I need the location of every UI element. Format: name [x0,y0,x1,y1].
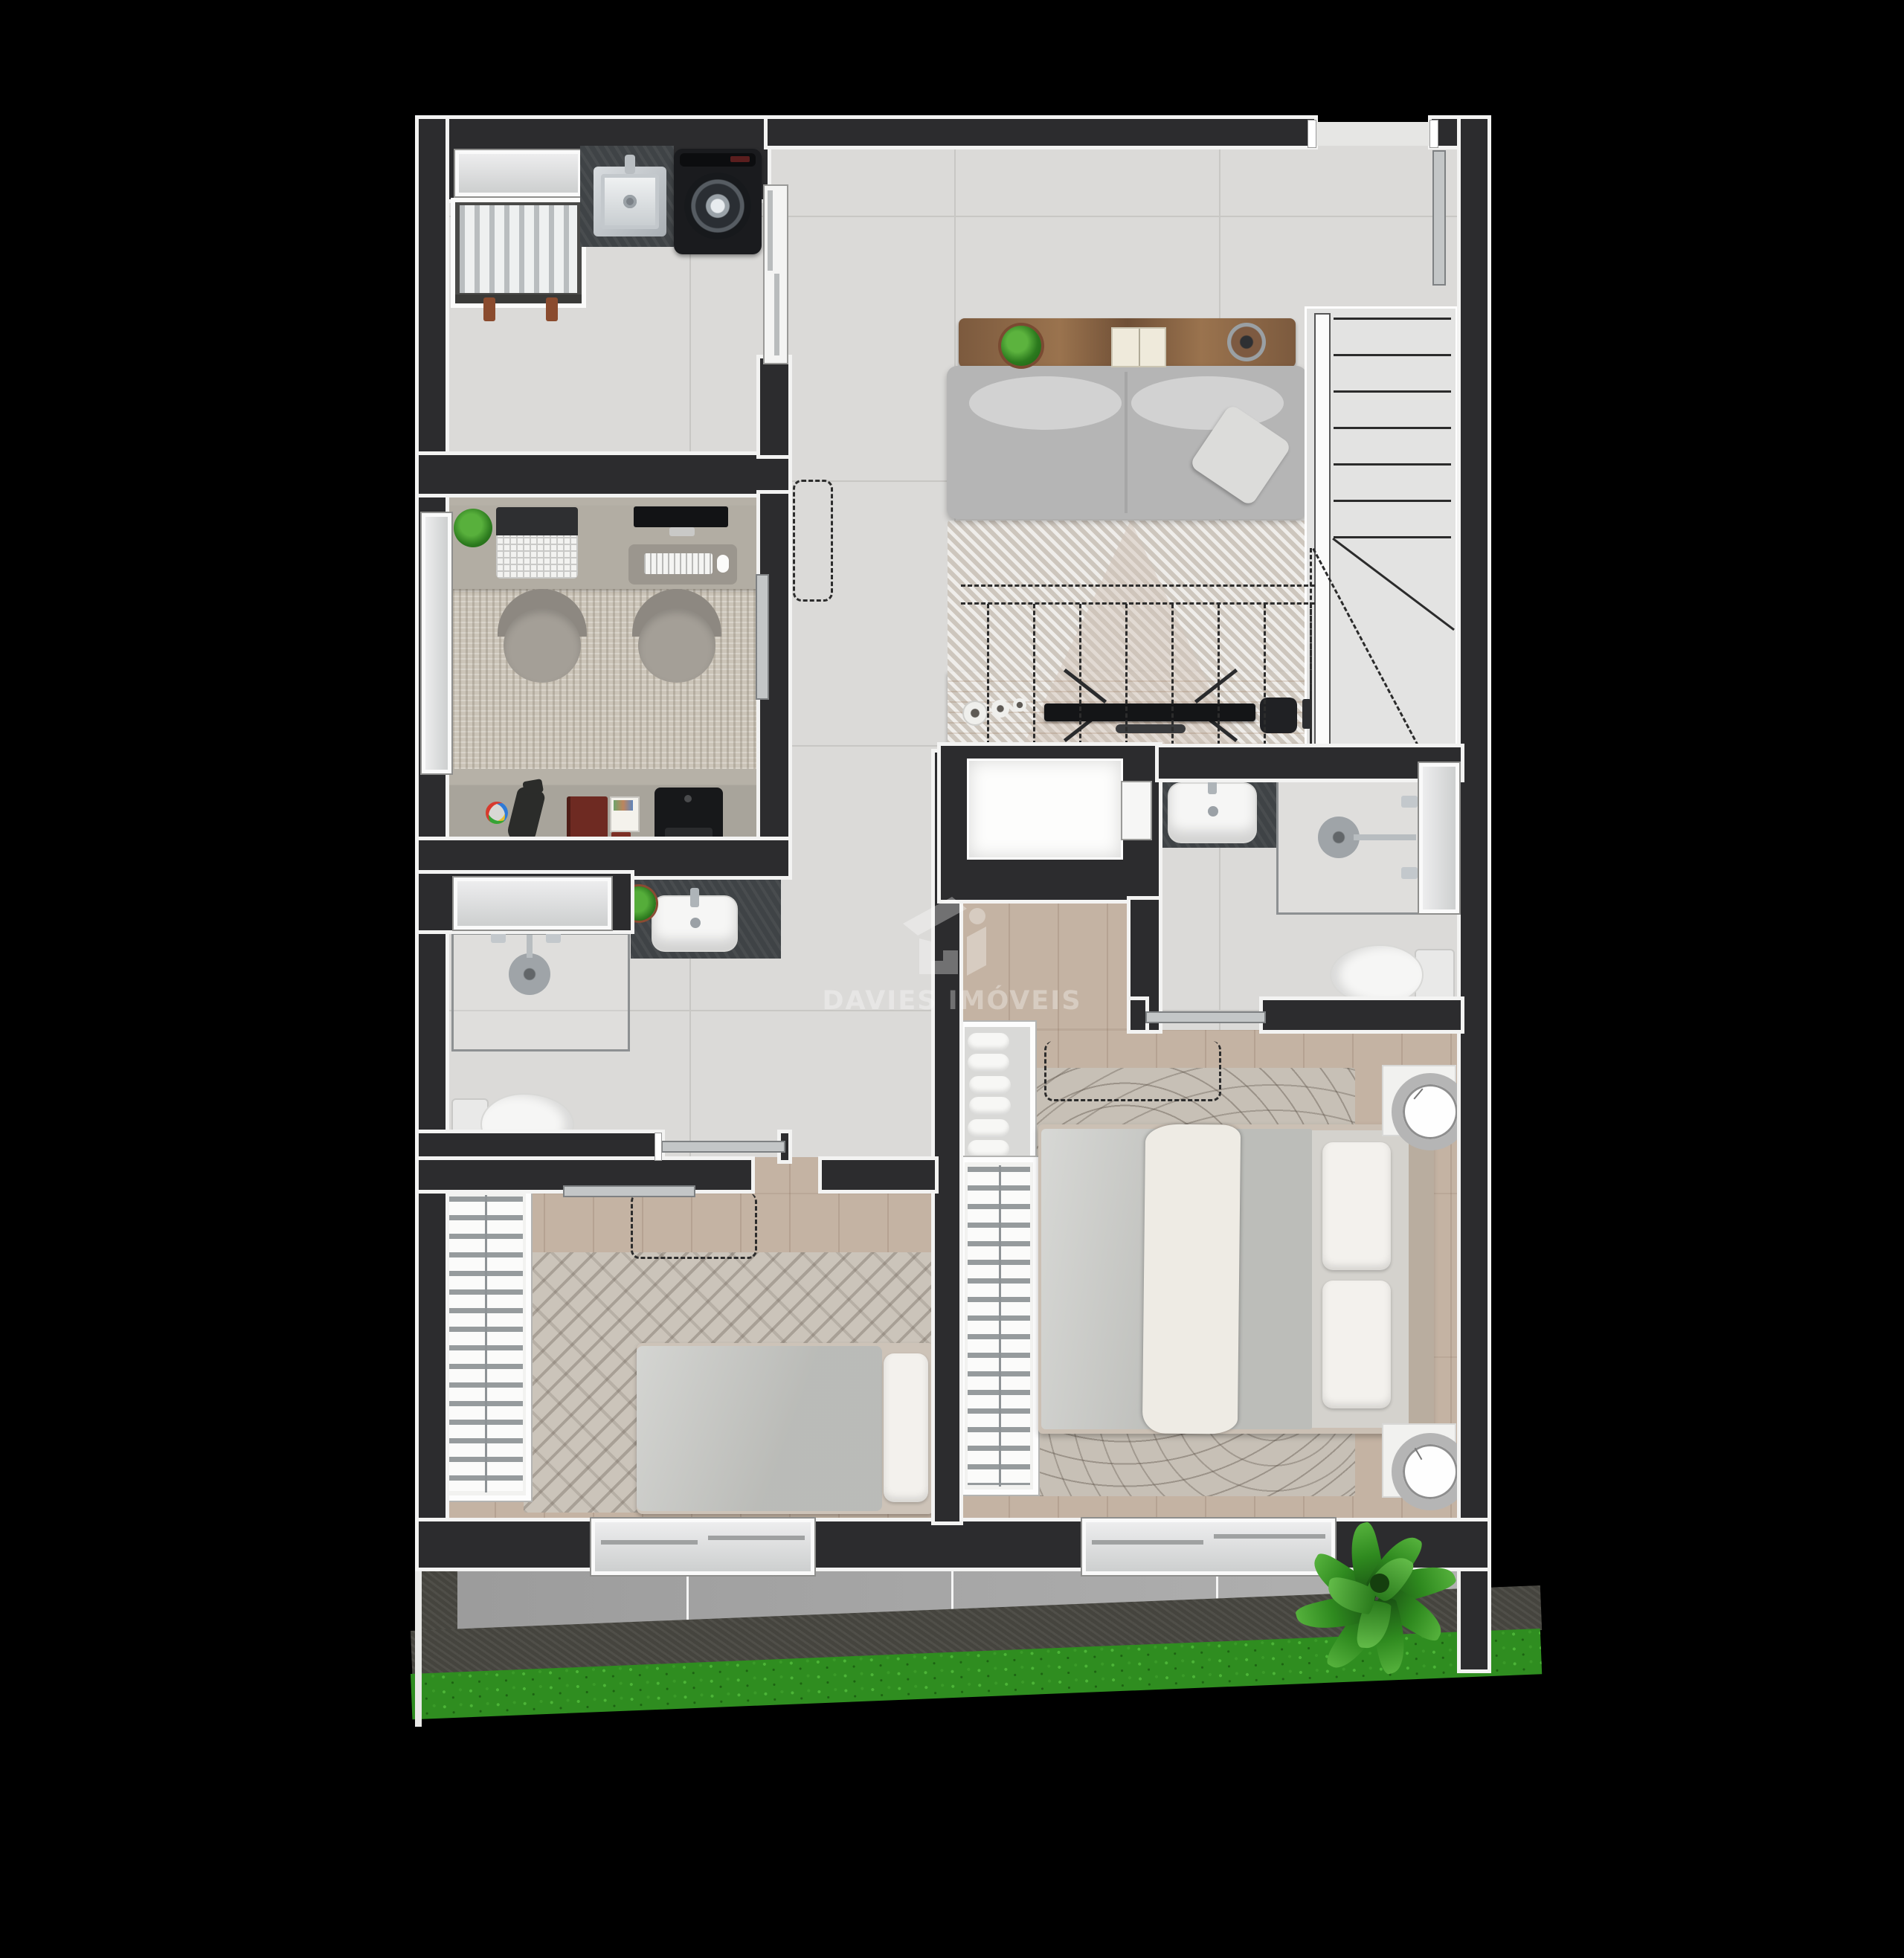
tv [1044,703,1255,721]
stair-tread [1334,427,1451,429]
laundry-partition-rail [763,184,788,364]
master-terrace-sliding-door [1082,1519,1335,1575]
slipper [968,1119,1009,1137]
left-wall [419,119,446,1550]
slipper [969,1076,1011,1094]
bath1-sliding-door [661,1141,785,1153]
stair-handrail [1314,313,1331,755]
bed1-pillow [884,1353,928,1502]
sink-faucet [625,155,635,174]
bedroom1-door-swing-dashed [631,1193,757,1259]
bedroom1-terrace-window [591,1519,814,1575]
overhead-cabinet-dash-line [961,602,1315,605]
nightstand-clock [1392,1073,1469,1150]
staircase [1307,309,1456,755]
sofa-back-cushion [969,376,1122,430]
console-book [1111,327,1166,367]
washer-led [730,156,750,162]
nightstand-clock [1392,1433,1469,1510]
office-door-marker-dashed [793,480,833,602]
condenser-slats [460,205,577,293]
office-window [422,513,451,773]
office-top-wall [419,455,788,494]
bed1-duvet [637,1346,882,1511]
bedroom1-sliding-door [563,1185,695,1197]
bed2-throw-blanket [1142,1124,1241,1434]
bottom-wall-seg2 [805,1521,1084,1568]
entry-sliding-panel [1432,150,1446,286]
bath2-shower-control [1401,796,1418,808]
stair-tread [1334,463,1451,466]
master-shoe-rack [959,1022,1035,1165]
entry-opening-floor [1314,122,1432,146]
bedroom1-bed [637,1343,934,1514]
keyboard [644,553,713,574]
laundry-window [455,150,582,196]
watermark-logo [897,891,1004,985]
overhead-cabinet-dash-col [987,604,989,745]
printer [654,788,723,844]
entry-jamb-right [1430,120,1438,147]
master-door-swing-dashed [1044,1041,1221,1101]
bedroom1-top-wall-b [822,1160,935,1190]
master-nightstand [1383,1425,1455,1496]
monitor [634,506,728,527]
laptop [496,507,578,579]
desk-plant [454,509,492,547]
bath1-bottom-wall-a [419,1133,661,1160]
monitor-stand [669,527,695,536]
partition-stub-wall [760,358,788,455]
overhead-cabinet-dash-line [961,584,1315,587]
decor-vase [1013,698,1026,712]
sink-drain [623,195,637,208]
watermark-brand-text: DAVIES IMÓVEIS [766,986,1138,1019]
master-nightstand [1383,1066,1455,1135]
bed2-pillow [1322,1281,1391,1408]
top-wall [768,119,1314,146]
floorplan-image: DAVIES IMÓVEIS [0,0,1904,1904]
bath2-sliding-door [1145,1011,1266,1023]
stair-tread [1334,390,1451,393]
condenser-bracket [546,297,558,321]
bath2-window [1419,763,1459,913]
bath2-vessel-sink [1169,784,1255,842]
sofa [947,366,1307,519]
overhead-cabinet-dash-col [1264,604,1266,745]
notebook [567,796,608,846]
right-wall [1461,119,1487,1669]
bath2-top-wall [1159,747,1461,779]
slipper [968,1033,1009,1051]
office-sliding-door [756,574,769,700]
bedroom1-wardrobe [439,1187,531,1501]
bath2-bottom-wall-b [1263,1000,1461,1030]
tropical-plant [1302,1510,1461,1688]
decor-vase [964,702,986,724]
master-wardrobe [959,1157,1038,1495]
console-plant [1001,326,1041,366]
washer-drum [684,173,751,239]
overhead-cabinet-dash-col [1218,604,1220,745]
condenser-bracket [483,297,495,321]
bath2-shower-enclosure [1276,779,1421,915]
overhead-cabinet-dash-col [1033,604,1035,745]
bottom-wall-seg1 [419,1521,593,1568]
wardrobe-rail [485,1195,487,1492]
overhead-cabinet-dash-col [1310,604,1312,745]
bath2-shower-control [1401,867,1418,879]
bath1-shower-enclosure [451,933,630,1052]
console-lamp [1227,323,1266,361]
bath1-window [454,877,611,930]
condenser-sill [455,294,582,303]
faucet [690,888,699,907]
service-shaft [969,761,1121,857]
bath2-toilet-bowl [1331,946,1422,1004]
mouse [717,555,729,573]
office-bath-wall [419,840,788,876]
terrace-black-mask [399,1671,1627,1958]
color-palette [486,802,508,824]
bed2-pillow [1322,1142,1391,1270]
shaft-door [1121,781,1152,840]
condenser-niche [451,198,586,308]
stair-tread [1334,318,1451,320]
slipper [968,1140,1009,1158]
entry-jamb-left [1308,120,1316,147]
washing-machine [674,149,762,254]
office-chair [632,589,721,690]
office-chair [498,589,587,690]
stair-tread [1334,536,1451,538]
stair-tread [1334,500,1451,502]
slipper [968,1054,1009,1072]
bed2-headboard [1409,1120,1434,1438]
bath1-door-jamb [655,1133,661,1160]
bath1-shower-control [546,931,561,943]
sketchpad [610,796,640,832]
decor-vase [991,700,1009,718]
wardrobe-rail [999,1165,1001,1487]
utility-sink [594,167,666,236]
stair-tread [1334,354,1451,356]
overhead-cabinet-dash-col [1125,604,1128,745]
bath1-shower-control [491,931,506,943]
overhead-cabinet-dash-col [1171,604,1174,745]
overhead-cabinet-dash-col [1079,604,1081,745]
sofa-back-cushion [1131,376,1284,430]
master-bed [1038,1124,1432,1434]
bath1-vessel-sink [653,897,736,950]
terrace-left-border [415,1541,422,1727]
slipper [969,1097,1011,1115]
